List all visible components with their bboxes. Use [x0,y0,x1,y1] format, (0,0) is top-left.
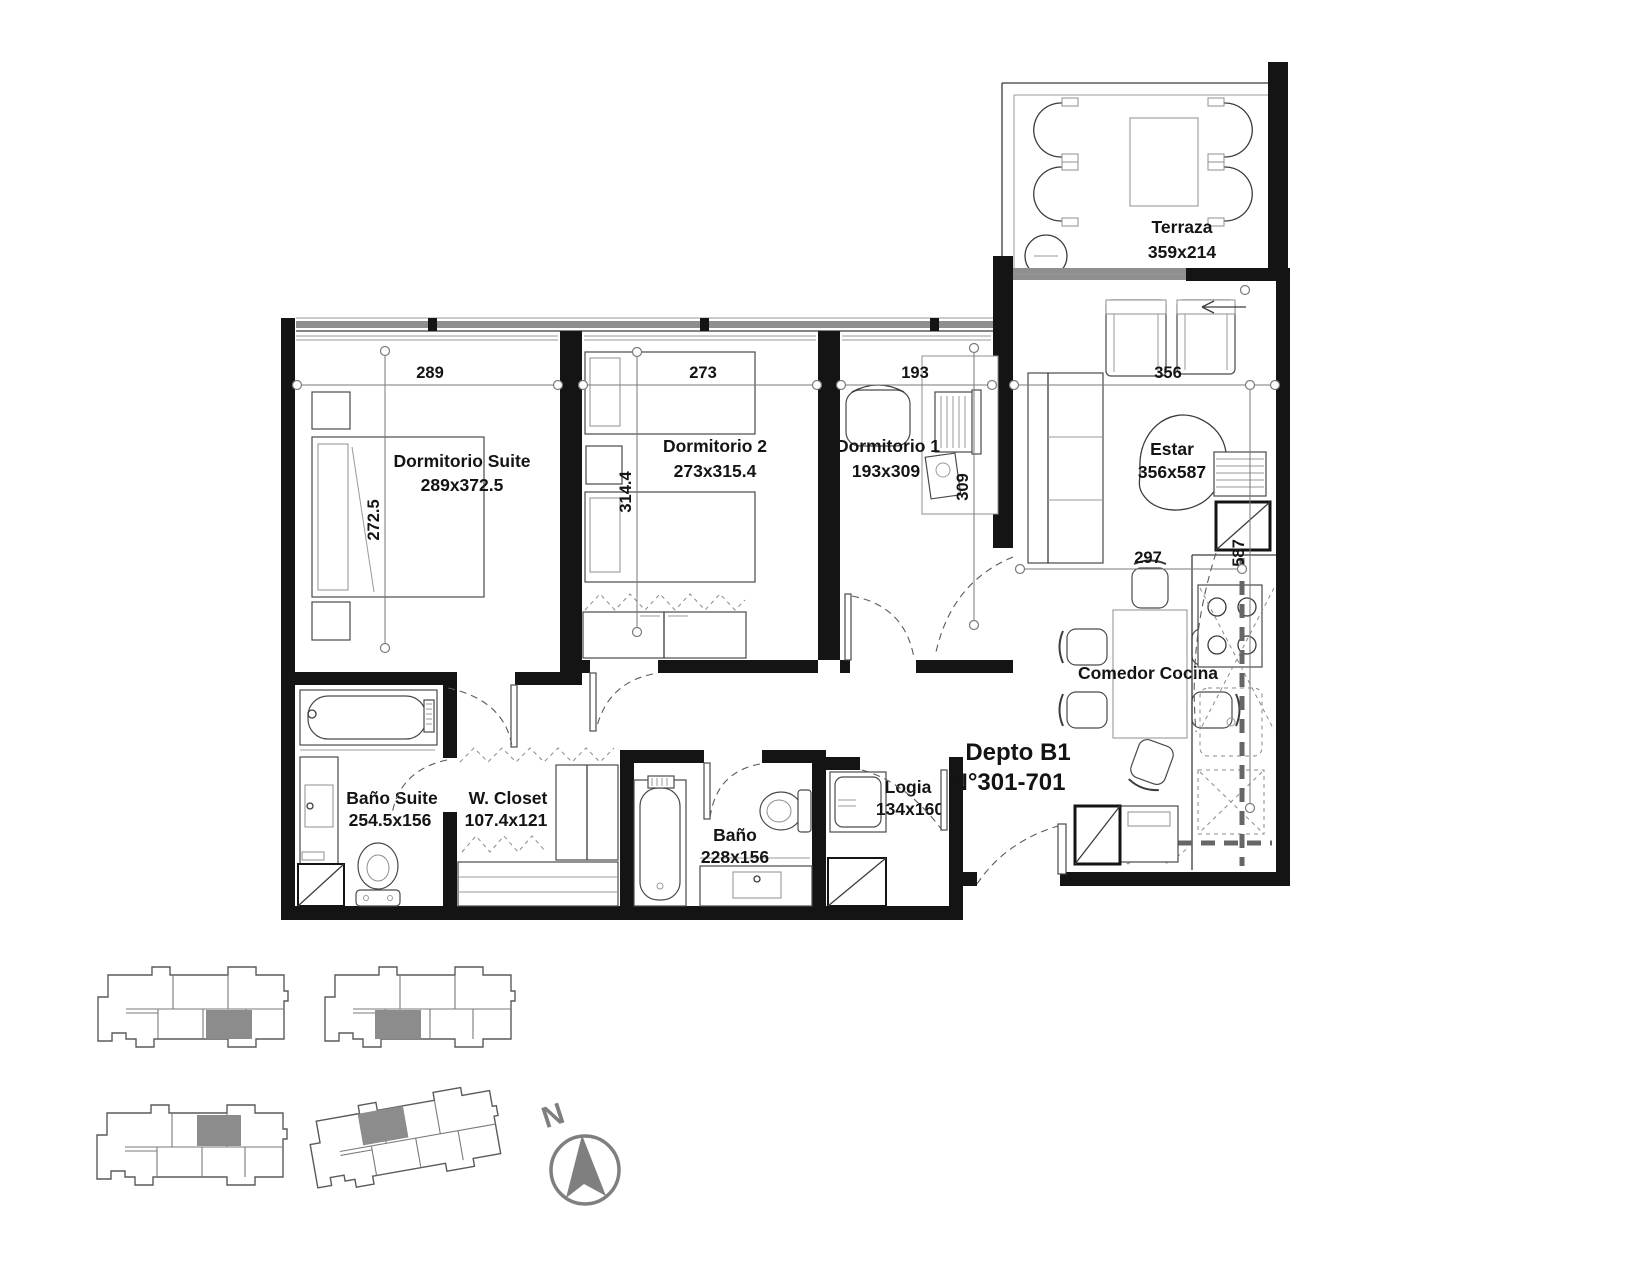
floorplan-page: Terraza 359x214 [0,0,1650,1275]
room-dims-terraza: 359x214 [1148,242,1216,262]
room-bano-suite: Baño Suite 254.5x156 [298,690,438,906]
room-w-closet: W. Closet 107.4x121 [458,748,618,906]
entry-door-leaf [1058,824,1066,874]
key-plan-building-1 [98,967,288,1047]
key-plan-building-2 [325,967,515,1047]
dim-dorm2-depth: 314.4 [617,471,635,513]
cabinet-detail [1128,812,1170,826]
room-dims-estar: 356x587 [1138,462,1206,482]
unit-highlight [197,1115,241,1146]
wardrobe-icon [583,594,746,658]
nightstand-icon [312,392,350,429]
room-label-dormitorio-2: Dormitorio 2 [663,436,767,456]
room-dormitorio-2: Dormitorio 2 273x315.4 [583,352,767,658]
sofa-icon [1028,373,1103,563]
room-dims-dormitorio-suite: 289x372.5 [421,475,504,495]
door-leaf [590,673,596,731]
room-dims-logia: 134x160 [876,799,944,819]
bathroom-vanity-icon [700,866,812,906]
toilet-icon [356,843,400,906]
room-estar: Estar 356x587 [1028,300,1246,563]
room-dormitorio-suite: Dormitorio Suite 289x372.5 [312,392,531,640]
dim-dorm2-width: 273 [689,364,717,382]
bathtub-icon [300,690,437,745]
door-leaf [511,685,517,747]
cooktop-icon [1198,585,1262,667]
dim-suite-width: 289 [416,364,444,382]
room-label-bano-suite: Baño Suite [346,788,438,808]
dining-chair-icon [1060,692,1108,728]
room-label-w-closet: W. Closet [469,788,548,808]
terraza-chair-icon [1208,98,1252,226]
room-bano: Baño 228x156 [634,776,812,906]
closet-cabinet-icon [556,765,618,860]
room-dims-dormitorio-2: 273x315.4 [674,461,757,481]
dim-dorm1-depth: 309 [954,473,972,501]
armchair-icon [1177,300,1235,374]
room-label-dormitorio-1: Dormitorio 1 [836,436,940,456]
unit-highlight [375,1010,421,1039]
north-label: N [538,1097,569,1135]
unit-number-label: N°301-701 [950,769,1065,796]
room-terraza: Terraza 359x214 [1002,62,1288,277]
single-bed-icon [585,352,755,434]
dim-estar-width: 356 [1154,364,1182,382]
nightstand-icon [312,602,350,640]
bathroom-vanity-icon [300,757,338,867]
dim-comedor-width: 297 [1134,549,1162,567]
shower-tray-icon [298,864,344,906]
terraza-chair-icon [1034,98,1078,226]
north-compass: N [538,1097,619,1204]
room-label-dormitorio-suite: Dormitorio Suite [393,451,530,471]
room-dims-w-closet: 107.4x121 [465,810,548,830]
unit-highlight [206,1010,252,1039]
north-arrow-icon [566,1135,606,1198]
terraza-right-wall [1268,62,1288,274]
duct-shaft-icon [1075,806,1120,864]
room-dims-bano-suite: 254.5x156 [349,810,432,830]
door-leaf [941,770,947,830]
dim-suite-depth: 272.5 [365,499,383,540]
entry-area: Depto B1 N°301-701 [950,739,1120,884]
toilet-icon [760,790,811,832]
bathtub-icon [634,776,686,906]
room-label-estar: Estar [1150,439,1194,459]
terraza-table-icon [1130,118,1198,206]
room-label-terraza: Terraza [1152,217,1213,237]
room-dims-dormitorio-1: 193x309 [852,461,920,481]
dresser-icon [458,862,618,906]
room-label-comedor-cocina: Comedor Cocina [1078,663,1218,683]
key-plan-building-3 [97,1105,287,1185]
dining-chair-icon [1126,737,1176,794]
dining-chair-icon [1132,561,1168,609]
dim-dorm1-width: 193 [901,364,929,382]
refrigerator-icon [1214,452,1266,496]
dining-chair-icon [1060,629,1108,665]
dim-estar-depth: 587 [1230,539,1248,567]
single-bed-icon [585,492,755,582]
unit-name-label: Depto B1 [965,739,1070,766]
key-plan-building-4 [305,1082,506,1194]
key-plans [97,967,515,1194]
duct-shaft-icon [828,858,886,906]
room-dims-bano: 228x156 [701,847,769,867]
entry-door-swing [977,826,1058,884]
floorplan-drawing: Terraza 359x214 [0,0,1650,1275]
door-leaf [845,594,851,660]
room-logia: Logia 134x160 [828,772,944,906]
dining-chair-icon [1192,692,1240,728]
room-label-bano: Baño [713,825,757,845]
door-leaf [704,763,710,819]
